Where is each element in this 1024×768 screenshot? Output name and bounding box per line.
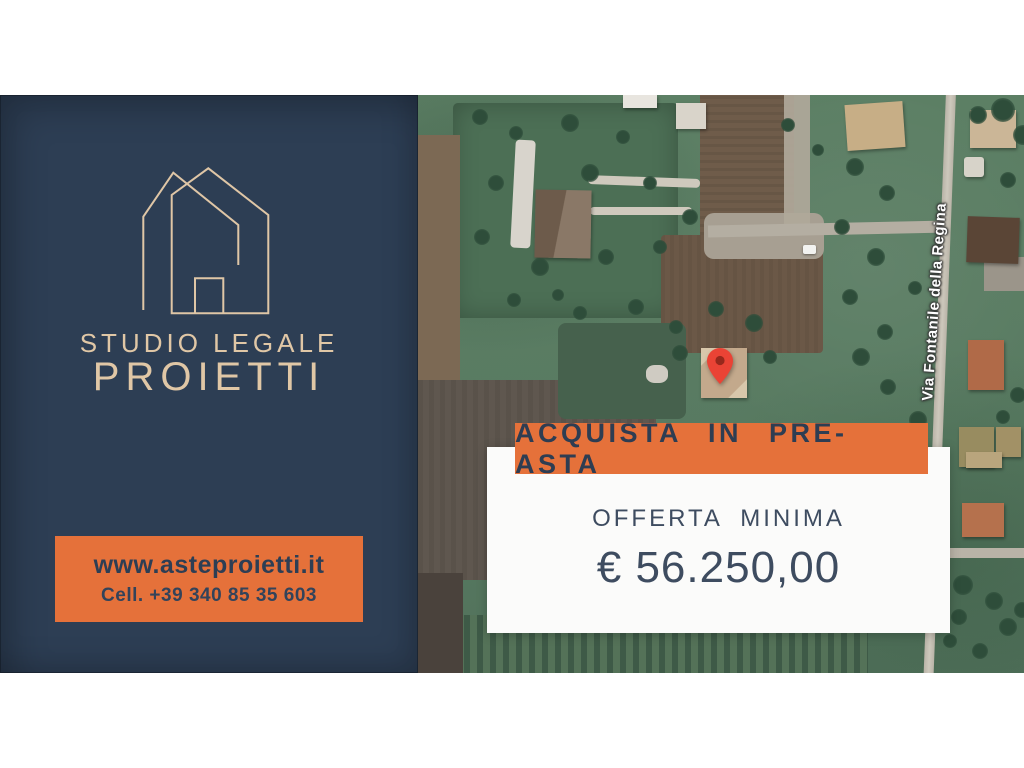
tree-icon [507,293,521,307]
tree-icon [509,126,523,140]
tree-icon [834,219,850,235]
tree-icon [552,289,564,301]
tree-icon [1010,387,1024,403]
tree-icon [672,345,688,361]
tree-icon [969,106,987,124]
tree-icon [842,289,858,305]
website-link[interactable]: www.asteproietti.it [94,551,325,580]
tree-icon [745,314,763,332]
tree-icon [867,248,885,266]
tree-icon [1014,602,1024,618]
tree-icon [643,176,657,190]
tree-icon [846,158,864,176]
tree-icon [708,301,724,317]
phone-number[interactable]: Cell. +39 340 85 35 603 [101,585,317,607]
tree-icon [951,609,967,625]
tree-icon [852,348,870,366]
tree-icon [972,643,988,659]
tree-icon [561,114,579,132]
tree-icon [531,258,549,276]
tree-icon [474,229,490,245]
tree-icon [598,249,614,265]
house-outline-logo-icon [130,150,300,330]
tree-icon [943,634,957,648]
tree-icon [616,130,630,144]
pre-asta-banner: ACQUISTA IN PRE-ASTA [515,423,928,474]
tree-icon [781,118,795,132]
tree-icon [573,306,587,320]
tree-icon [996,410,1010,424]
tree-icon [877,324,893,340]
tree-icon [581,164,599,182]
tree-icon [991,98,1015,122]
auction-flyer: STUDIO LEGALE PROIETTI www.asteproietti.… [0,0,1024,768]
tree-icon [953,575,973,595]
contact-box[interactable]: www.asteproietti.it Cell. +39 340 85 35 … [55,536,363,622]
tree-icon [812,144,824,156]
tree-icon [1013,125,1024,145]
offer-label: OFFERTA MINIMA [487,505,950,533]
location-pin-icon[interactable] [707,347,733,385]
tree-icon [669,320,683,334]
tree-icon [880,379,896,395]
tree-icon [628,299,644,315]
tree-icon [999,618,1017,636]
pre-asta-banner-label: ACQUISTA IN PRE-ASTA [515,418,928,480]
tree-icon [985,592,1003,610]
tree-icon [879,185,895,201]
tree-icon [763,350,777,364]
brand-panel: STUDIO LEGALE PROIETTI www.asteproietti.… [0,95,418,673]
studio-name-line2: PROIETTI [0,355,418,400]
tree-icon [653,240,667,254]
tree-icon [908,281,922,295]
offer-amount: € 56.250,00 [487,543,950,593]
tree-icon [1000,172,1016,188]
tree-icon [472,109,488,125]
tree-icon [488,175,504,191]
tree-icon [682,209,698,225]
